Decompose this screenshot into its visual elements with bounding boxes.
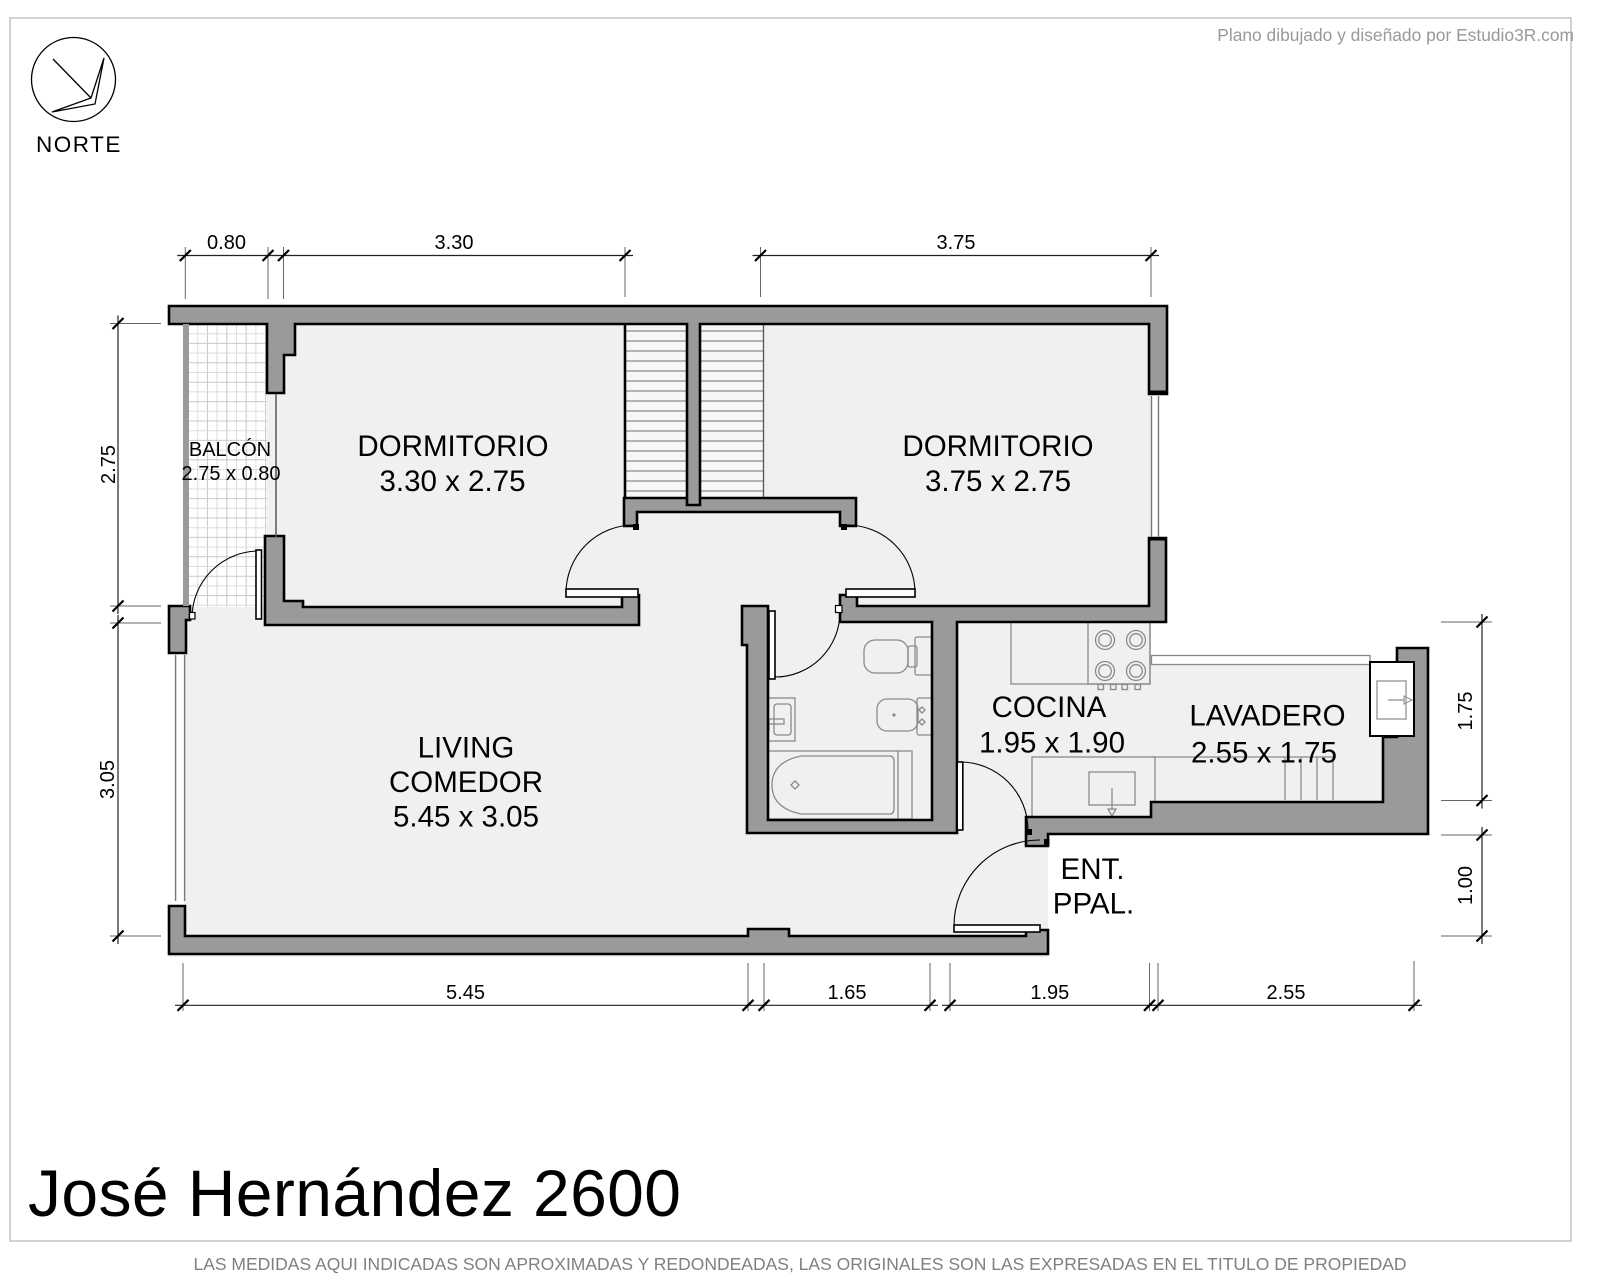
svg-text:2.55 x 1.75: 2.55 x 1.75 xyxy=(1191,737,1337,770)
svg-text:COCINA: COCINA xyxy=(992,691,1107,724)
svg-text:5.45 x 3.05: 5.45 x 3.05 xyxy=(393,801,539,834)
svg-text:COMEDOR: COMEDOR xyxy=(389,766,543,799)
svg-text:DORMITORIO: DORMITORIO xyxy=(357,430,548,463)
svg-text:1.65: 1.65 xyxy=(828,982,867,1004)
svg-text:2.75 x 0.80: 2.75 x 0.80 xyxy=(182,463,281,485)
svg-text:1.75: 1.75 xyxy=(1455,692,1477,731)
svg-text:PPAL.: PPAL. xyxy=(1053,888,1134,921)
svg-text:LAVADERO: LAVADERO xyxy=(1189,700,1345,733)
svg-text:2.75: 2.75 xyxy=(98,445,120,484)
svg-text:José Hernández 2600: José Hernández 2600 xyxy=(28,1156,681,1230)
svg-text:BALCÓN: BALCÓN xyxy=(189,438,271,461)
svg-text:5.45: 5.45 xyxy=(446,982,485,1004)
svg-text:NORTE: NORTE xyxy=(36,132,122,157)
svg-text:3.75 x 2.75: 3.75 x 2.75 xyxy=(925,465,1071,498)
svg-text:ENT.: ENT. xyxy=(1061,853,1125,886)
svg-text:Plano dibujado y diseñado por: Plano dibujado y diseñado por Estudio3R.… xyxy=(1217,25,1574,45)
svg-text:1.00: 1.00 xyxy=(1455,866,1477,905)
svg-text:2.55: 2.55 xyxy=(1267,982,1306,1004)
svg-text:DORMITORIO: DORMITORIO xyxy=(902,430,1093,463)
svg-text:3.05: 3.05 xyxy=(97,760,119,799)
svg-text:3.30 x 2.75: 3.30 x 2.75 xyxy=(380,465,526,498)
svg-text:LIVING: LIVING xyxy=(418,732,515,765)
svg-text:3.30: 3.30 xyxy=(435,232,474,254)
svg-text:1.95 x 1.90: 1.95 x 1.90 xyxy=(979,727,1125,760)
svg-text:0.80: 0.80 xyxy=(207,232,246,254)
svg-text:LAS MEDIDAS AQUI INDICADAS SON: LAS MEDIDAS AQUI INDICADAS SON APROXIMAD… xyxy=(193,1254,1406,1274)
svg-text:1.95: 1.95 xyxy=(1030,982,1069,1004)
svg-text:3.75: 3.75 xyxy=(937,232,976,254)
